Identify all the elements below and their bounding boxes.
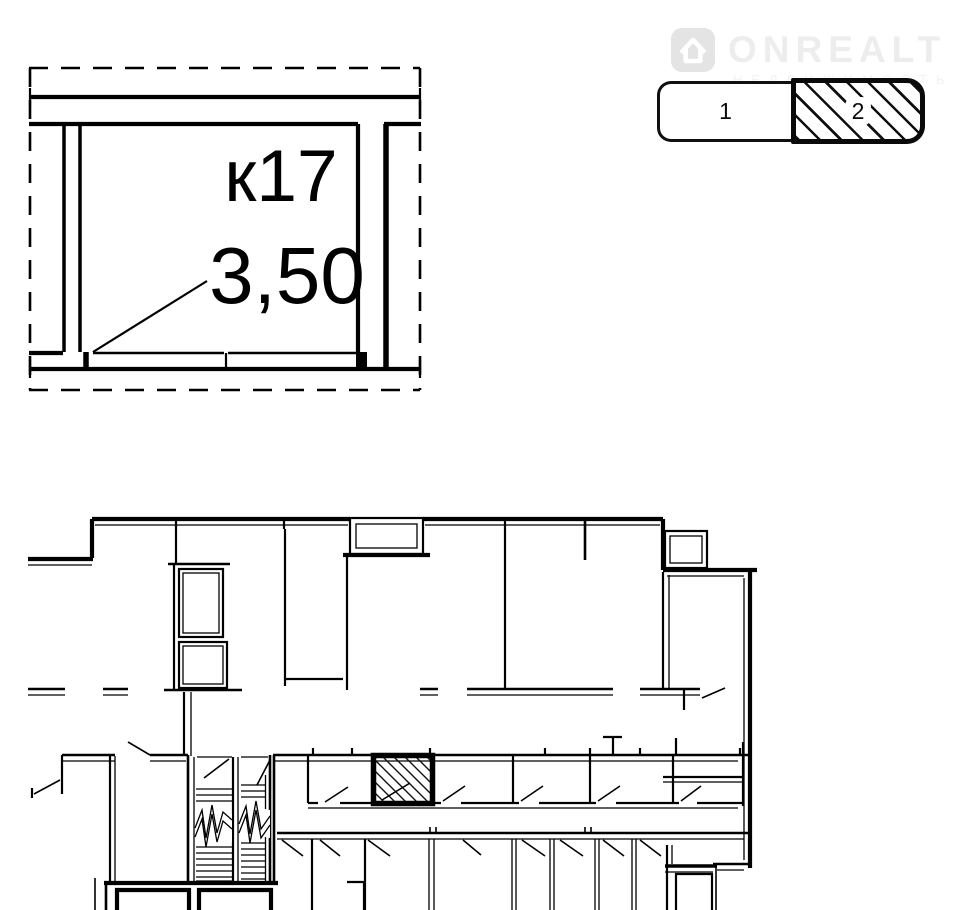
floorplan-page: к17 3,50 <box>0 0 960 910</box>
floor-option-2-selected[interactable]: 2 <box>791 78 925 144</box>
watermark-brand: ONREALT <box>728 29 946 71</box>
balcony-box <box>665 531 707 568</box>
floor-selector: 1 2 <box>657 78 925 144</box>
elevator-shaft <box>164 521 242 756</box>
bay-window <box>343 518 430 555</box>
watermark: ONREALT НЕДВИЖИМОСТЬ <box>671 28 946 72</box>
highlighted-room[interactable] <box>374 756 433 804</box>
staircases <box>188 755 274 883</box>
bottom-room-band <box>277 827 752 910</box>
upper-corridor-wall <box>28 688 725 698</box>
house-icon <box>671 28 715 72</box>
room-number-label: к17 <box>224 136 337 217</box>
floor-option-1[interactable]: 1 <box>657 81 791 142</box>
floor-option-1-label: 1 <box>719 98 732 125</box>
outer-walls <box>28 519 757 868</box>
room-area-label: 3,50 <box>209 231 365 320</box>
door-swing-line <box>93 281 207 352</box>
floor-option-2-label: 2 <box>845 97 872 126</box>
room-detail-inset: к17 3,50 <box>29 68 421 390</box>
floor-overview-plan <box>28 518 757 910</box>
detail-dashed-boundary <box>29 68 420 390</box>
